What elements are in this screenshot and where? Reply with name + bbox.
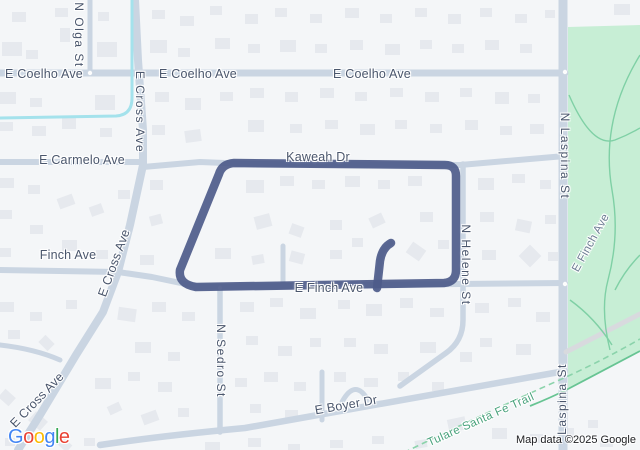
road-boyer-culdesac <box>342 389 368 402</box>
building <box>495 92 509 104</box>
road-finch-ave-west <box>0 270 195 286</box>
building <box>385 44 400 55</box>
building <box>117 307 137 322</box>
building <box>0 122 13 131</box>
google-logo-letter: g <box>44 426 55 448</box>
building <box>400 298 413 308</box>
map-tiles <box>0 0 640 450</box>
building <box>515 14 527 23</box>
building <box>220 92 233 101</box>
google-logo[interactable]: Google <box>8 426 70 449</box>
building <box>289 223 305 238</box>
building <box>300 308 316 319</box>
building <box>135 342 151 353</box>
building <box>330 220 342 230</box>
building <box>325 120 338 129</box>
building <box>98 12 109 21</box>
building <box>107 402 123 416</box>
building <box>100 128 112 137</box>
building <box>345 8 359 18</box>
building <box>152 302 166 312</box>
building <box>141 410 160 426</box>
building <box>30 98 42 107</box>
building <box>520 44 532 53</box>
building <box>338 300 350 309</box>
building <box>465 120 478 130</box>
building <box>128 372 140 381</box>
building <box>12 12 26 22</box>
building <box>149 214 163 227</box>
building <box>280 40 296 52</box>
building <box>240 302 254 312</box>
building <box>95 378 111 389</box>
building <box>588 420 598 428</box>
building <box>406 242 427 262</box>
building <box>28 185 40 194</box>
building <box>152 125 165 135</box>
building <box>452 44 464 53</box>
building <box>478 178 494 190</box>
building <box>536 312 550 322</box>
building <box>545 215 556 224</box>
building <box>150 180 163 190</box>
building <box>62 118 76 129</box>
building <box>270 298 283 307</box>
building <box>89 203 105 217</box>
building <box>30 225 43 234</box>
building <box>278 346 292 356</box>
building <box>289 250 305 264</box>
building <box>62 240 77 251</box>
building <box>168 352 180 361</box>
building <box>492 428 507 439</box>
building <box>528 94 540 103</box>
building <box>360 124 375 135</box>
google-logo-letter: G <box>8 426 23 448</box>
building <box>97 42 117 57</box>
building <box>420 212 433 222</box>
building <box>480 212 494 222</box>
building <box>460 352 472 362</box>
building <box>182 312 195 321</box>
building <box>248 44 260 53</box>
building <box>294 382 306 391</box>
building <box>248 438 261 447</box>
building <box>215 248 231 259</box>
building <box>0 302 14 312</box>
building <box>60 28 70 42</box>
junction-dot <box>563 282 567 286</box>
building <box>512 174 525 183</box>
building <box>614 4 630 15</box>
building <box>500 126 512 135</box>
building <box>185 98 201 110</box>
building <box>480 8 492 17</box>
building <box>485 40 499 50</box>
junction-dot <box>88 71 92 75</box>
building <box>312 180 325 189</box>
junction-dot <box>563 154 567 158</box>
building <box>66 300 77 309</box>
building <box>320 88 334 98</box>
building <box>215 38 230 49</box>
building <box>310 338 321 347</box>
building <box>425 92 439 102</box>
google-logo-letter: o <box>34 426 45 448</box>
building <box>96 250 108 259</box>
google-logo-letter: o <box>23 426 34 448</box>
building <box>515 219 532 234</box>
building <box>540 180 551 189</box>
google-logo-letter: e <box>59 426 70 448</box>
building <box>118 190 130 199</box>
building <box>0 178 14 188</box>
building <box>0 210 12 219</box>
building <box>482 250 496 260</box>
building <box>352 238 363 247</box>
building <box>30 312 42 321</box>
building <box>57 194 76 210</box>
building <box>0 92 16 104</box>
building <box>366 304 382 316</box>
building <box>508 298 521 307</box>
building <box>152 10 165 19</box>
building <box>180 16 194 26</box>
building <box>0 389 16 407</box>
building <box>0 248 11 257</box>
building <box>390 88 403 97</box>
building <box>460 88 472 97</box>
building <box>480 338 492 347</box>
building <box>275 8 287 17</box>
building <box>264 372 278 382</box>
building <box>344 338 356 347</box>
map-canvas[interactable]: E Coelho AveE Coelho AveE Coelho AveN Ol… <box>0 0 640 450</box>
building <box>158 382 172 392</box>
building <box>414 439 427 449</box>
building <box>438 240 449 249</box>
building <box>184 129 202 143</box>
building <box>155 92 169 102</box>
building <box>150 40 167 53</box>
building <box>334 372 346 382</box>
building <box>415 8 427 17</box>
building <box>330 250 342 259</box>
building <box>372 436 384 444</box>
building <box>84 438 95 446</box>
building <box>245 14 258 24</box>
building <box>430 308 444 317</box>
building <box>330 440 343 448</box>
building <box>246 336 258 345</box>
building <box>251 254 264 265</box>
building <box>519 245 542 268</box>
map-attribution: Map data ©2025 Google <box>516 434 636 446</box>
building <box>516 344 531 355</box>
building <box>420 40 432 49</box>
building <box>55 8 68 17</box>
building <box>246 180 264 193</box>
building <box>140 255 154 265</box>
building <box>290 124 302 133</box>
building <box>530 124 544 134</box>
building <box>420 342 436 353</box>
building <box>250 404 261 413</box>
building <box>364 378 378 387</box>
building <box>2 42 22 56</box>
building <box>38 335 54 351</box>
building <box>288 444 300 450</box>
building <box>280 176 294 186</box>
building <box>475 303 489 313</box>
junction-dot <box>563 70 567 74</box>
building <box>235 378 247 387</box>
building <box>345 176 360 187</box>
building <box>380 14 392 23</box>
building <box>32 126 46 136</box>
building <box>26 50 38 59</box>
building <box>395 120 407 129</box>
building <box>374 344 388 354</box>
building <box>8 330 20 339</box>
building <box>355 92 367 101</box>
building <box>548 252 558 261</box>
building <box>178 48 190 57</box>
building <box>250 88 264 98</box>
building <box>95 95 115 110</box>
building <box>210 6 222 15</box>
building <box>310 14 322 23</box>
building <box>205 442 220 450</box>
building <box>285 92 298 102</box>
building <box>430 124 442 133</box>
building <box>368 213 385 229</box>
building <box>254 213 273 230</box>
building <box>408 176 422 186</box>
building <box>448 14 461 24</box>
building <box>248 120 264 132</box>
building <box>545 10 555 18</box>
building <box>378 180 390 189</box>
building <box>350 40 363 50</box>
building <box>315 44 327 53</box>
building <box>178 408 189 417</box>
